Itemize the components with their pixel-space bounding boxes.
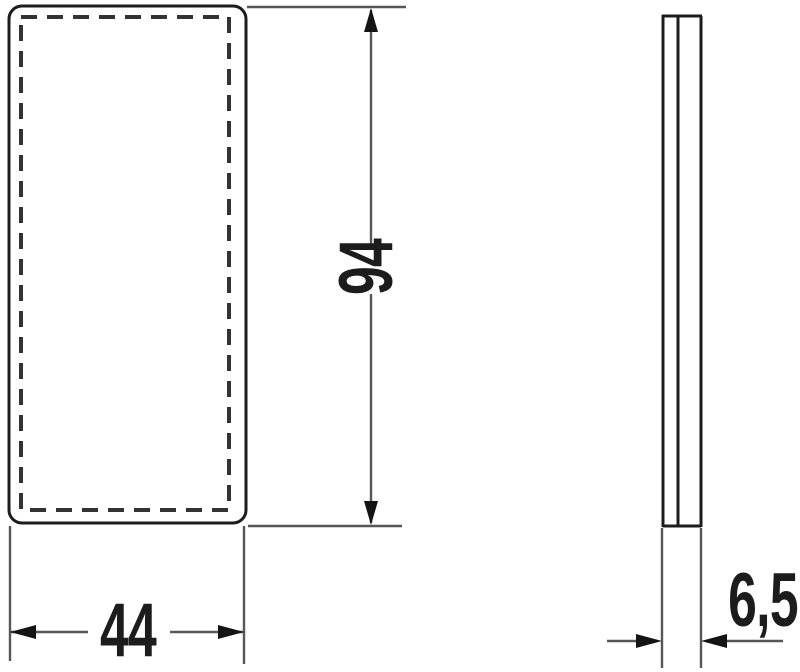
side-view xyxy=(662,15,702,527)
reflector-front-outline xyxy=(9,6,246,523)
front-view xyxy=(9,6,246,523)
width-arrow-right-icon xyxy=(218,625,244,639)
depth-arrow-right-icon xyxy=(636,634,662,648)
width-dimension-label: 44 xyxy=(100,587,157,672)
height-arrow-down-icon xyxy=(364,501,378,525)
height-dimension-label: 94 xyxy=(323,238,408,295)
reflector-lens-dashed-outline xyxy=(21,17,229,510)
width-dimension: 44 xyxy=(10,526,244,672)
depth-arrow-left-icon xyxy=(701,634,727,648)
height-dimension: 94 xyxy=(247,7,408,526)
depth-dimension: 6,5 xyxy=(607,528,798,668)
depth-dimension-label: 6,5 xyxy=(728,557,798,642)
technical-drawing-canvas: 94 44 6,5 xyxy=(0,0,800,672)
width-arrow-left-icon xyxy=(10,625,36,639)
height-arrow-up-icon xyxy=(364,8,378,32)
reflector-dimension-drawing: 94 44 6,5 xyxy=(0,0,800,672)
